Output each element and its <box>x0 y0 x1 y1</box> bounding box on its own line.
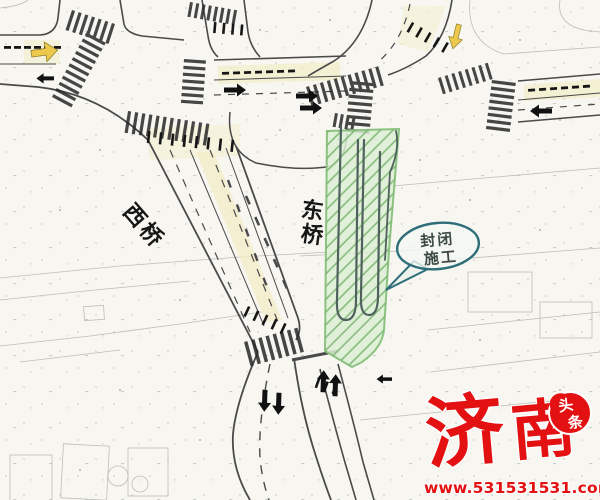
watermark: 济 南 头 条 www.531531531.com <box>422 378 600 497</box>
east-bridge-char-2: 桥 <box>299 221 327 250</box>
construction-map: 封闭 施工 西桥 东 桥 济 南 头 条 www.531531531.com <box>0 0 600 500</box>
brand-char-1: 济 <box>422 385 509 482</box>
callout-text-line2: 施工 <box>423 247 458 268</box>
badge-char-1: 头 <box>557 396 574 416</box>
watermark-url: www.531531531.com <box>424 479 600 497</box>
brand-text: 济 南 <box>422 378 579 481</box>
construction-plan-screenshot: 封闭 施工 西桥 东 桥 济 南 头 条 www.531531531.com <box>0 0 600 500</box>
